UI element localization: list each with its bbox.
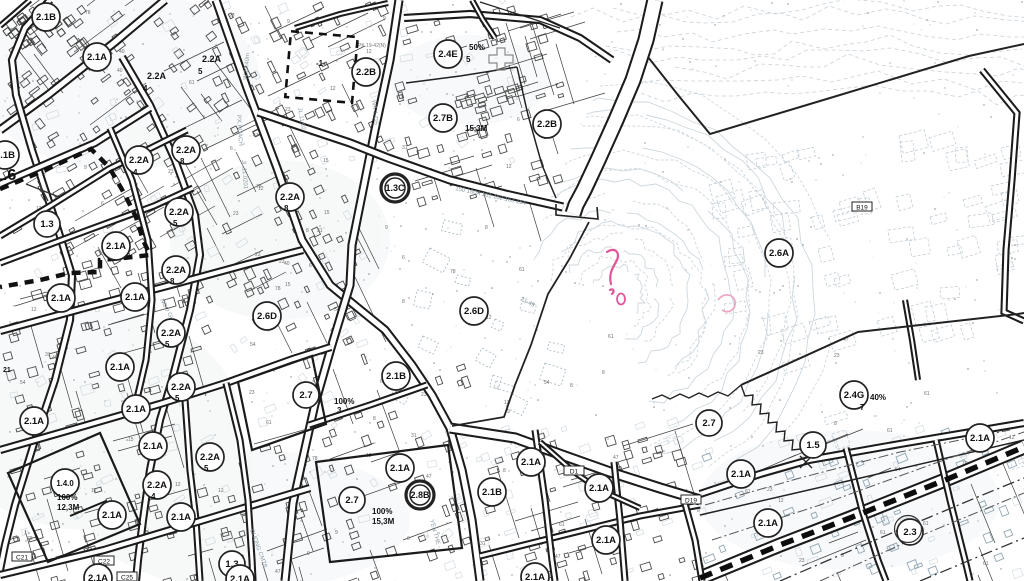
svg-text:6: 6	[230, 146, 233, 152]
svg-text:47: 47	[253, 133, 259, 139]
svg-text:31: 31	[402, 145, 408, 151]
svg-text:2.2A: 2.2A	[161, 328, 181, 339]
svg-text:54: 54	[544, 380, 550, 386]
svg-text:8: 8	[402, 299, 405, 305]
svg-text:9: 9	[385, 225, 388, 231]
svg-text:5: 5	[466, 55, 471, 64]
svg-text:1.6: 1.6	[0, 167, 16, 184]
svg-text:54: 54	[250, 342, 256, 348]
svg-text:9: 9	[287, 19, 290, 25]
svg-text:2.1A: 2.1A	[24, 416, 44, 427]
svg-text:8: 8	[306, 228, 309, 234]
svg-text:2.2A: 2.2A	[280, 192, 300, 203]
svg-text:2.3: 2.3	[903, 527, 916, 538]
svg-text:78: 78	[27, 536, 33, 542]
svg-text:100%: 100%	[57, 493, 77, 502]
svg-text:4: 4	[151, 492, 156, 501]
svg-text:2.2B: 2.2B	[537, 119, 557, 130]
svg-text:6: 6	[101, 201, 104, 207]
svg-text:50%: 50%	[469, 43, 485, 52]
svg-text:78: 78	[85, 10, 91, 16]
svg-text:8: 8	[373, 416, 376, 422]
svg-text:6: 6	[402, 255, 405, 261]
svg-text:2.1B: 2.1B	[386, 371, 406, 382]
svg-text:2.1A: 2.1A	[143, 441, 163, 452]
svg-text:61: 61	[745, 489, 751, 495]
svg-text:8: 8	[570, 383, 573, 389]
svg-text:61: 61	[924, 391, 930, 397]
svg-text:8: 8	[180, 157, 185, 166]
svg-text:2.1A: 2.1A	[87, 52, 107, 63]
svg-text:C21: C21	[16, 555, 28, 562]
svg-text:15,3M: 15,3M	[372, 517, 395, 526]
svg-text:2.1A: 2.1A	[970, 433, 990, 444]
svg-text:5: 5	[175, 394, 180, 403]
svg-text:4: 4	[143, 84, 148, 93]
svg-text:9: 9	[84, 165, 87, 171]
svg-text:12: 12	[31, 307, 37, 313]
svg-text:2.1A: 2.1A	[731, 469, 751, 480]
svg-text:8: 8	[602, 370, 605, 376]
svg-text:78: 78	[275, 286, 281, 292]
svg-text:2.6D: 2.6D	[257, 311, 277, 322]
svg-text:47: 47	[613, 455, 619, 461]
svg-text:23: 23	[233, 211, 239, 217]
svg-text:23: 23	[834, 353, 840, 359]
svg-text:4: 4	[133, 168, 138, 177]
svg-text:2.4G: 2.4G	[844, 390, 865, 401]
svg-text:8: 8	[170, 277, 175, 286]
svg-text:9: 9	[335, 530, 338, 536]
svg-text:2.2A: 2.2A	[129, 155, 149, 166]
svg-text:2.7: 2.7	[345, 495, 358, 506]
svg-text:2.2A: 2.2A	[171, 382, 191, 393]
svg-text:5: 5	[198, 67, 203, 76]
svg-text:2.2B: 2.2B	[356, 67, 376, 78]
svg-text:2.2A: 2.2A	[176, 145, 196, 156]
svg-text:2.6A: 2.6A	[769, 248, 789, 259]
svg-text:12: 12	[330, 86, 336, 92]
svg-text:15,3M: 15,3M	[465, 124, 488, 133]
svg-text:5: 5	[204, 464, 209, 473]
svg-text:23: 23	[249, 390, 255, 396]
svg-text:23: 23	[767, 487, 773, 493]
svg-text:31: 31	[45, 352, 51, 358]
svg-text:1.5: 1.5	[806, 440, 820, 451]
svg-text:2.1A: 2.1A	[758, 518, 778, 529]
svg-text:2.2A: 2.2A	[169, 207, 189, 218]
svg-text:23: 23	[285, 107, 291, 113]
svg-text:12: 12	[506, 164, 512, 170]
svg-text:2.2A: 2.2A	[147, 71, 167, 81]
svg-text:61: 61	[983, 561, 989, 567]
svg-text:61: 61	[880, 530, 886, 536]
svg-text:D1: D1	[570, 469, 579, 476]
svg-text:2.2A: 2.2A	[202, 54, 222, 64]
svg-text:2.1A: 2.1A	[88, 573, 108, 581]
svg-text:23: 23	[758, 350, 764, 356]
svg-text:12: 12	[778, 498, 784, 504]
svg-text:2.2A: 2.2A	[166, 265, 186, 276]
svg-text:2.1A: 2.1A	[230, 574, 250, 581]
svg-text:2.2A: 2.2A	[200, 452, 220, 463]
svg-text:1.4.0: 1.4.0	[56, 479, 74, 488]
svg-text:2.8B: 2.8B	[410, 490, 430, 500]
svg-text:2.1A: 2.1A	[171, 512, 191, 523]
svg-text:15: 15	[324, 210, 330, 216]
svg-text:15: 15	[285, 282, 291, 288]
svg-text:-1-: -1-	[316, 59, 326, 68]
svg-text:2.1B: 2.1B	[36, 12, 56, 23]
svg-text:78: 78	[256, 184, 262, 190]
svg-text:61: 61	[559, 522, 565, 528]
svg-text:2.1B: 2.1B	[0, 150, 15, 161]
svg-text:100%: 100%	[334, 397, 354, 406]
svg-text:2.7: 2.7	[702, 418, 715, 429]
svg-text:2.7: 2.7	[299, 390, 312, 401]
svg-text:9: 9	[383, 16, 386, 22]
svg-text:5: 5	[165, 340, 170, 349]
svg-text:8: 8	[284, 204, 289, 213]
svg-text:2.2A: 2.2A	[147, 480, 167, 491]
svg-text:23: 23	[229, 13, 235, 19]
svg-text:2.1A: 2.1A	[126, 404, 146, 415]
svg-text:78: 78	[450, 269, 456, 275]
svg-text:40: 40	[117, 68, 123, 74]
svg-text:31: 31	[317, 228, 323, 234]
svg-text:2.1A: 2.1A	[125, 292, 145, 303]
svg-text:2.1A: 2.1A	[525, 572, 545, 581]
svg-text:40: 40	[284, 261, 290, 267]
svg-text:2.1A: 2.1A	[106, 241, 126, 252]
svg-text:2.1B: 2.1B	[482, 487, 502, 498]
svg-text:2.1A: 2.1A	[390, 463, 410, 474]
svg-text:100%: 100%	[372, 507, 392, 516]
svg-text:61: 61	[189, 80, 195, 86]
svg-text:8: 8	[834, 421, 837, 427]
svg-text:9: 9	[507, 409, 510, 415]
svg-text:2.4E: 2.4E	[438, 49, 458, 60]
svg-text:31: 31	[411, 433, 417, 439]
svg-text:12: 12	[91, 488, 97, 494]
svg-text:47: 47	[426, 474, 432, 480]
svg-text:9: 9	[307, 551, 310, 557]
svg-text:7: 7	[860, 403, 865, 412]
svg-text:2.1A: 2.1A	[596, 535, 616, 546]
svg-text:12: 12	[175, 482, 181, 488]
svg-text:C25: C25	[121, 575, 133, 581]
svg-text:5: 5	[173, 219, 178, 228]
svg-text:2.1A: 2.1A	[521, 457, 541, 468]
svg-text:15: 15	[128, 437, 134, 443]
svg-text:61: 61	[519, 267, 525, 273]
svg-text:47: 47	[555, 554, 561, 560]
svg-text:3: 3	[337, 406, 342, 415]
svg-text:2.1A: 2.1A	[51, 293, 71, 304]
svg-text:54: 54	[20, 380, 26, 386]
svg-text:61: 61	[608, 334, 614, 340]
svg-text:8: 8	[503, 468, 506, 474]
svg-text:61: 61	[923, 521, 929, 527]
svg-text:6: 6	[517, 117, 520, 123]
svg-text:21: 21	[3, 367, 11, 374]
svg-text:6: 6	[407, 536, 410, 542]
svg-text:2.7B: 2.7B	[433, 113, 453, 124]
svg-text:2.6D: 2.6D	[464, 306, 484, 317]
svg-text:47: 47	[275, 569, 281, 575]
svg-text:23: 23	[799, 558, 805, 564]
svg-text:1.3: 1.3	[40, 219, 53, 230]
svg-text:D19: D19	[685, 498, 697, 505]
svg-text:2.1A: 2.1A	[110, 362, 130, 373]
svg-text:1.3C: 1.3C	[385, 183, 405, 193]
svg-text:8: 8	[485, 225, 488, 231]
svg-text:2.1A: 2.1A	[589, 483, 609, 494]
svg-text:PK.19-42(N): PK.19-42(N)	[358, 43, 386, 49]
svg-text:12,3M: 12,3M	[57, 503, 80, 512]
svg-text:40%: 40%	[870, 393, 886, 402]
svg-text:2.1A: 2.1A	[102, 510, 122, 521]
svg-text:6: 6	[487, 94, 490, 100]
svg-text:61: 61	[887, 428, 893, 434]
svg-text:12: 12	[366, 49, 372, 55]
svg-text:B19: B19	[856, 205, 868, 212]
